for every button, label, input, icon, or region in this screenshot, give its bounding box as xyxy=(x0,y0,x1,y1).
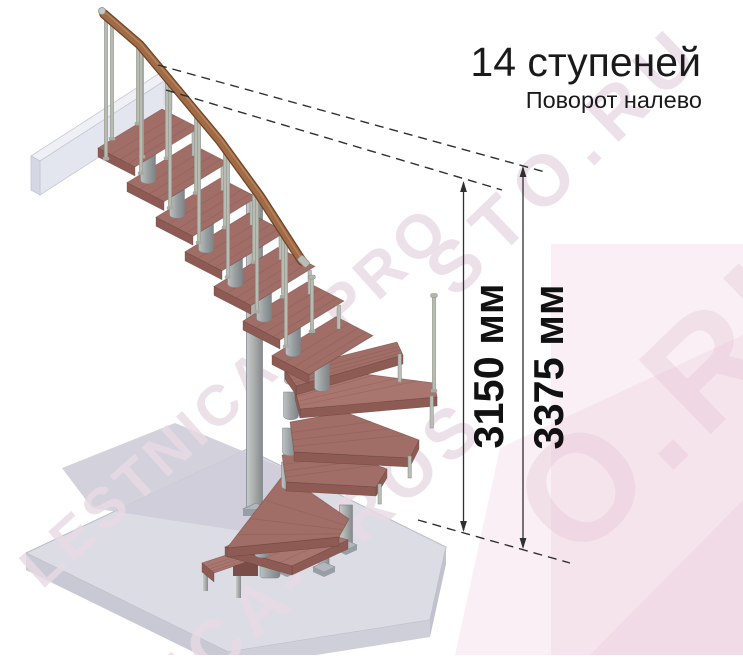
svg-text:14 ступеней: 14 ступеней xyxy=(470,39,701,85)
svg-text:3375 мм: 3375 мм xyxy=(525,284,572,449)
svg-text:3150 мм: 3150 мм xyxy=(465,283,512,448)
svg-text:Поворот налево: Поворот налево xyxy=(526,87,702,113)
